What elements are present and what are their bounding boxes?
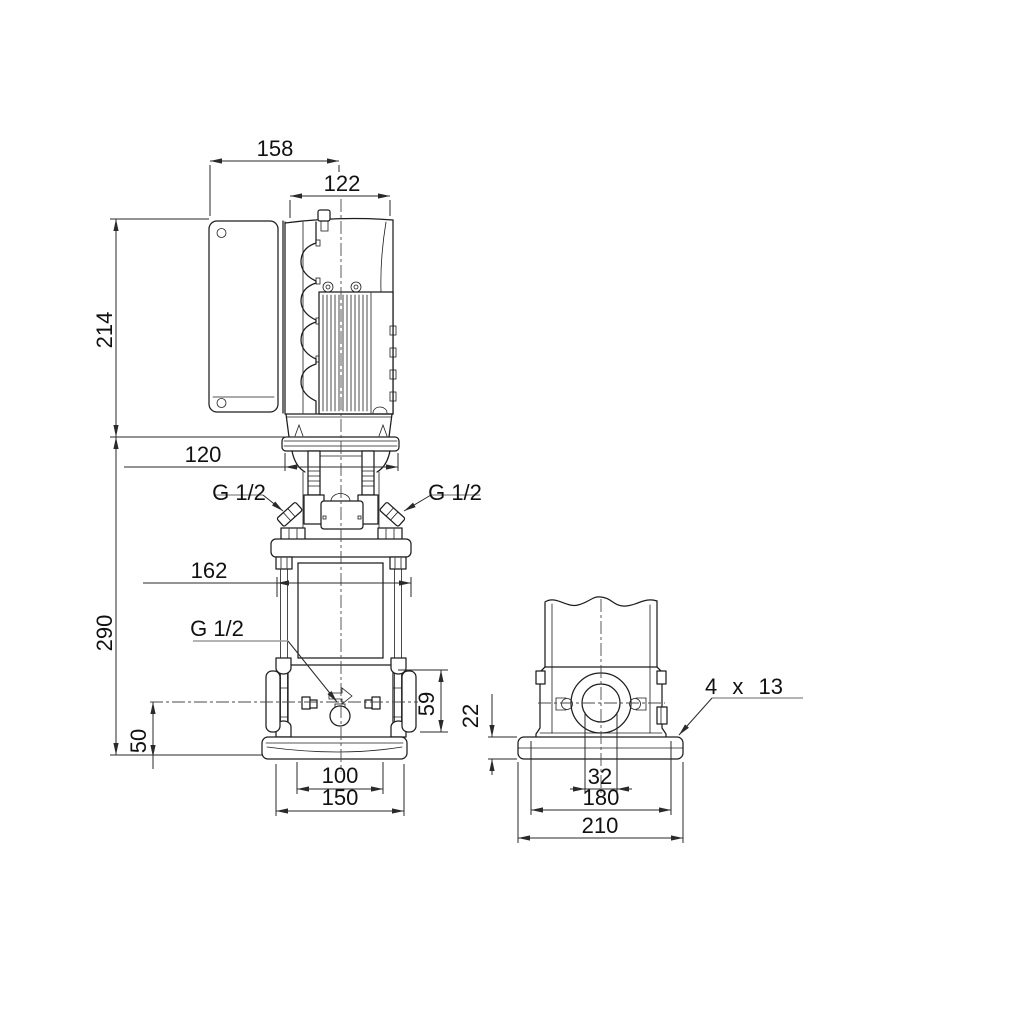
motor-heatsink (319, 292, 396, 414)
dim-label-290: 290 (92, 615, 117, 652)
dim-port-axis-height: 50 (126, 702, 153, 769)
label-gauge-right: G 1/2 (428, 480, 482, 505)
chamber-section (262, 658, 416, 759)
staybolt-bracket-top-left (276, 658, 291, 674)
outer-sleeve (298, 563, 383, 658)
dim-label-158: 158 (257, 136, 294, 161)
side-bracket-left (536, 671, 545, 684)
dim-label-210: 210 (582, 813, 619, 838)
dimensions: 158 122 214 290 120 (92, 136, 803, 843)
suction-flange (266, 671, 280, 732)
cable-gland (318, 210, 330, 231)
callout-drain: G 1/2 (190, 616, 337, 702)
dim-label-214: 214 (92, 312, 117, 349)
dim-label-50: 50 (126, 729, 151, 753)
callout-gauge-right: G 1/2 (404, 480, 482, 511)
dim-label-122: 122 (324, 171, 361, 196)
chamber-bolt-right (365, 697, 380, 709)
motor-top-outline (285, 219, 393, 223)
chamber-bolt-left (302, 697, 317, 709)
callout-gauge-left: G 1/2 (212, 480, 283, 511)
dim-overall-width: 158 (210, 136, 339, 216)
gauge-plug-left (277, 502, 303, 527)
gauge-plug-right (379, 502, 405, 527)
drawing-page: 158 122 214 290 120 (0, 0, 1024, 1024)
dim-baseplate-thickness: 22 (458, 694, 517, 775)
label-drain: G 1/2 (190, 616, 244, 641)
label-bolt-holes: 4 x 13 (705, 674, 783, 699)
dim-label-150: 150 (322, 785, 359, 810)
dim-label-120: 120 (185, 442, 222, 467)
side-base-plate (518, 737, 683, 759)
callout-bolt-holes: 4 x 13 (679, 674, 803, 735)
dim-label-162: 162 (191, 558, 228, 583)
pump-dimensional-drawing: 158 122 214 290 120 (0, 0, 1024, 1024)
motor-flange (282, 414, 399, 451)
label-gauge-left: G 1/2 (212, 480, 266, 505)
dim-label-180: 180 (583, 785, 620, 810)
front-base-plate (262, 737, 407, 759)
motor (209, 210, 399, 451)
heatsink-screws (323, 282, 361, 292)
dim-label-22: 22 (458, 704, 483, 728)
port-bolt-boss-right (630, 698, 647, 710)
side-view (518, 597, 683, 759)
staybolt-bracket-top-right (391, 658, 406, 674)
coupling-box (321, 494, 363, 529)
dim-motor-height: 214 (92, 219, 209, 437)
dim-label-59: 59 (414, 692, 439, 716)
port-bolt-boss-left (556, 698, 573, 710)
nameplate (657, 707, 667, 724)
drain-plug (330, 706, 350, 726)
motor-control-box (209, 221, 278, 412)
dim-motor-width: 122 (290, 171, 390, 218)
side-bracket-right (657, 671, 666, 684)
